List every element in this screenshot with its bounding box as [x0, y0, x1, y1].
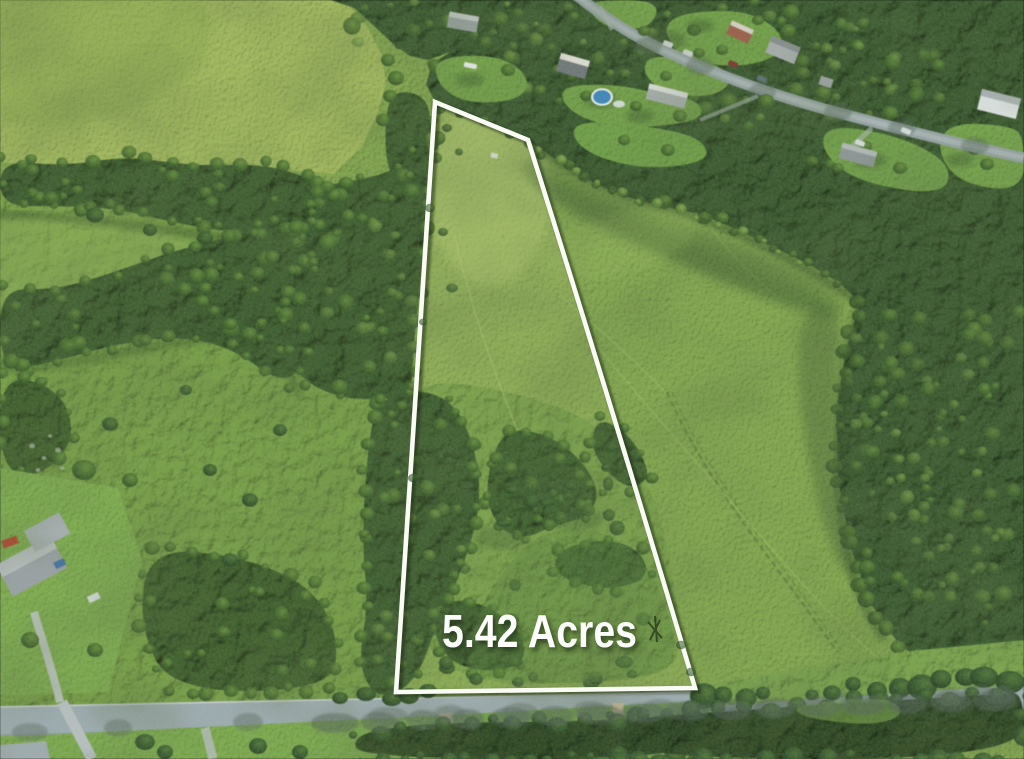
- svg-text:5.42 Acres: 5.42 Acres: [442, 605, 637, 657]
